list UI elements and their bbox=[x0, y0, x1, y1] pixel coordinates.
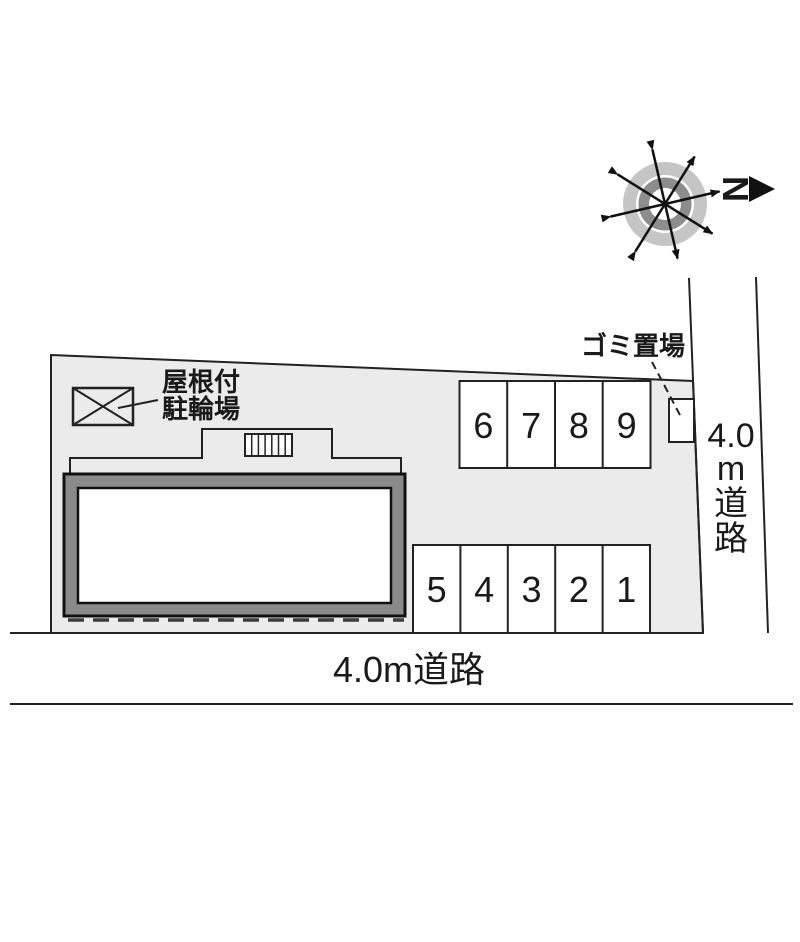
bicycle-shed-label-line2: 駐輪場 bbox=[162, 394, 240, 424]
bicycle-shed-label-line1: 屋根付 bbox=[162, 367, 240, 397]
road-right-label-kanji2: 路 bbox=[714, 520, 748, 558]
parking-stall-number: 7 bbox=[521, 405, 541, 446]
parking-stall-number: 3 bbox=[521, 569, 541, 610]
road-right-label-unit: m bbox=[717, 450, 745, 488]
parking-stall-number: 8 bbox=[569, 405, 589, 446]
road-right-label-kanji1: 道 bbox=[714, 485, 748, 523]
parking-row-bottom: 5 4 3 2 1 bbox=[413, 545, 650, 633]
parking-row-top: 6 7 8 9 bbox=[460, 381, 651, 468]
road-bottom-label: 4.0m道路 bbox=[333, 649, 485, 690]
building-interior bbox=[78, 488, 391, 603]
parking-stall-number: 2 bbox=[569, 569, 589, 610]
parking-stall-number: 5 bbox=[427, 569, 447, 610]
parking-stall-number: 4 bbox=[474, 569, 494, 610]
site-plan: 6 7 8 9 5 4 3 2 1 bbox=[0, 0, 800, 942]
site-plan-drawing: 6 7 8 9 5 4 3 2 1 bbox=[0, 0, 800, 942]
road-right-label: 4.0 m 道 路 bbox=[707, 417, 754, 558]
stairs-icon bbox=[245, 434, 292, 456]
parking-stall-number: 6 bbox=[473, 405, 493, 446]
parking-stall-number: 1 bbox=[616, 569, 636, 610]
garbage-area-box bbox=[669, 399, 694, 442]
garbage-area-label: ゴミ置場 bbox=[581, 331, 685, 361]
parking-stall-number: 9 bbox=[617, 405, 637, 446]
